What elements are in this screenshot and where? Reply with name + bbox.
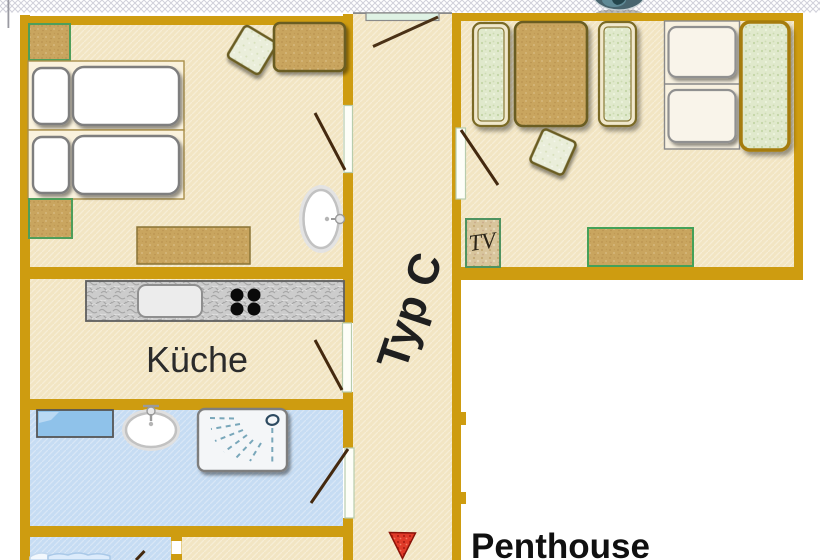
- svg-text:Küche: Küche: [146, 339, 248, 380]
- svg-text:Penthouse: Penthouse: [471, 527, 650, 560]
